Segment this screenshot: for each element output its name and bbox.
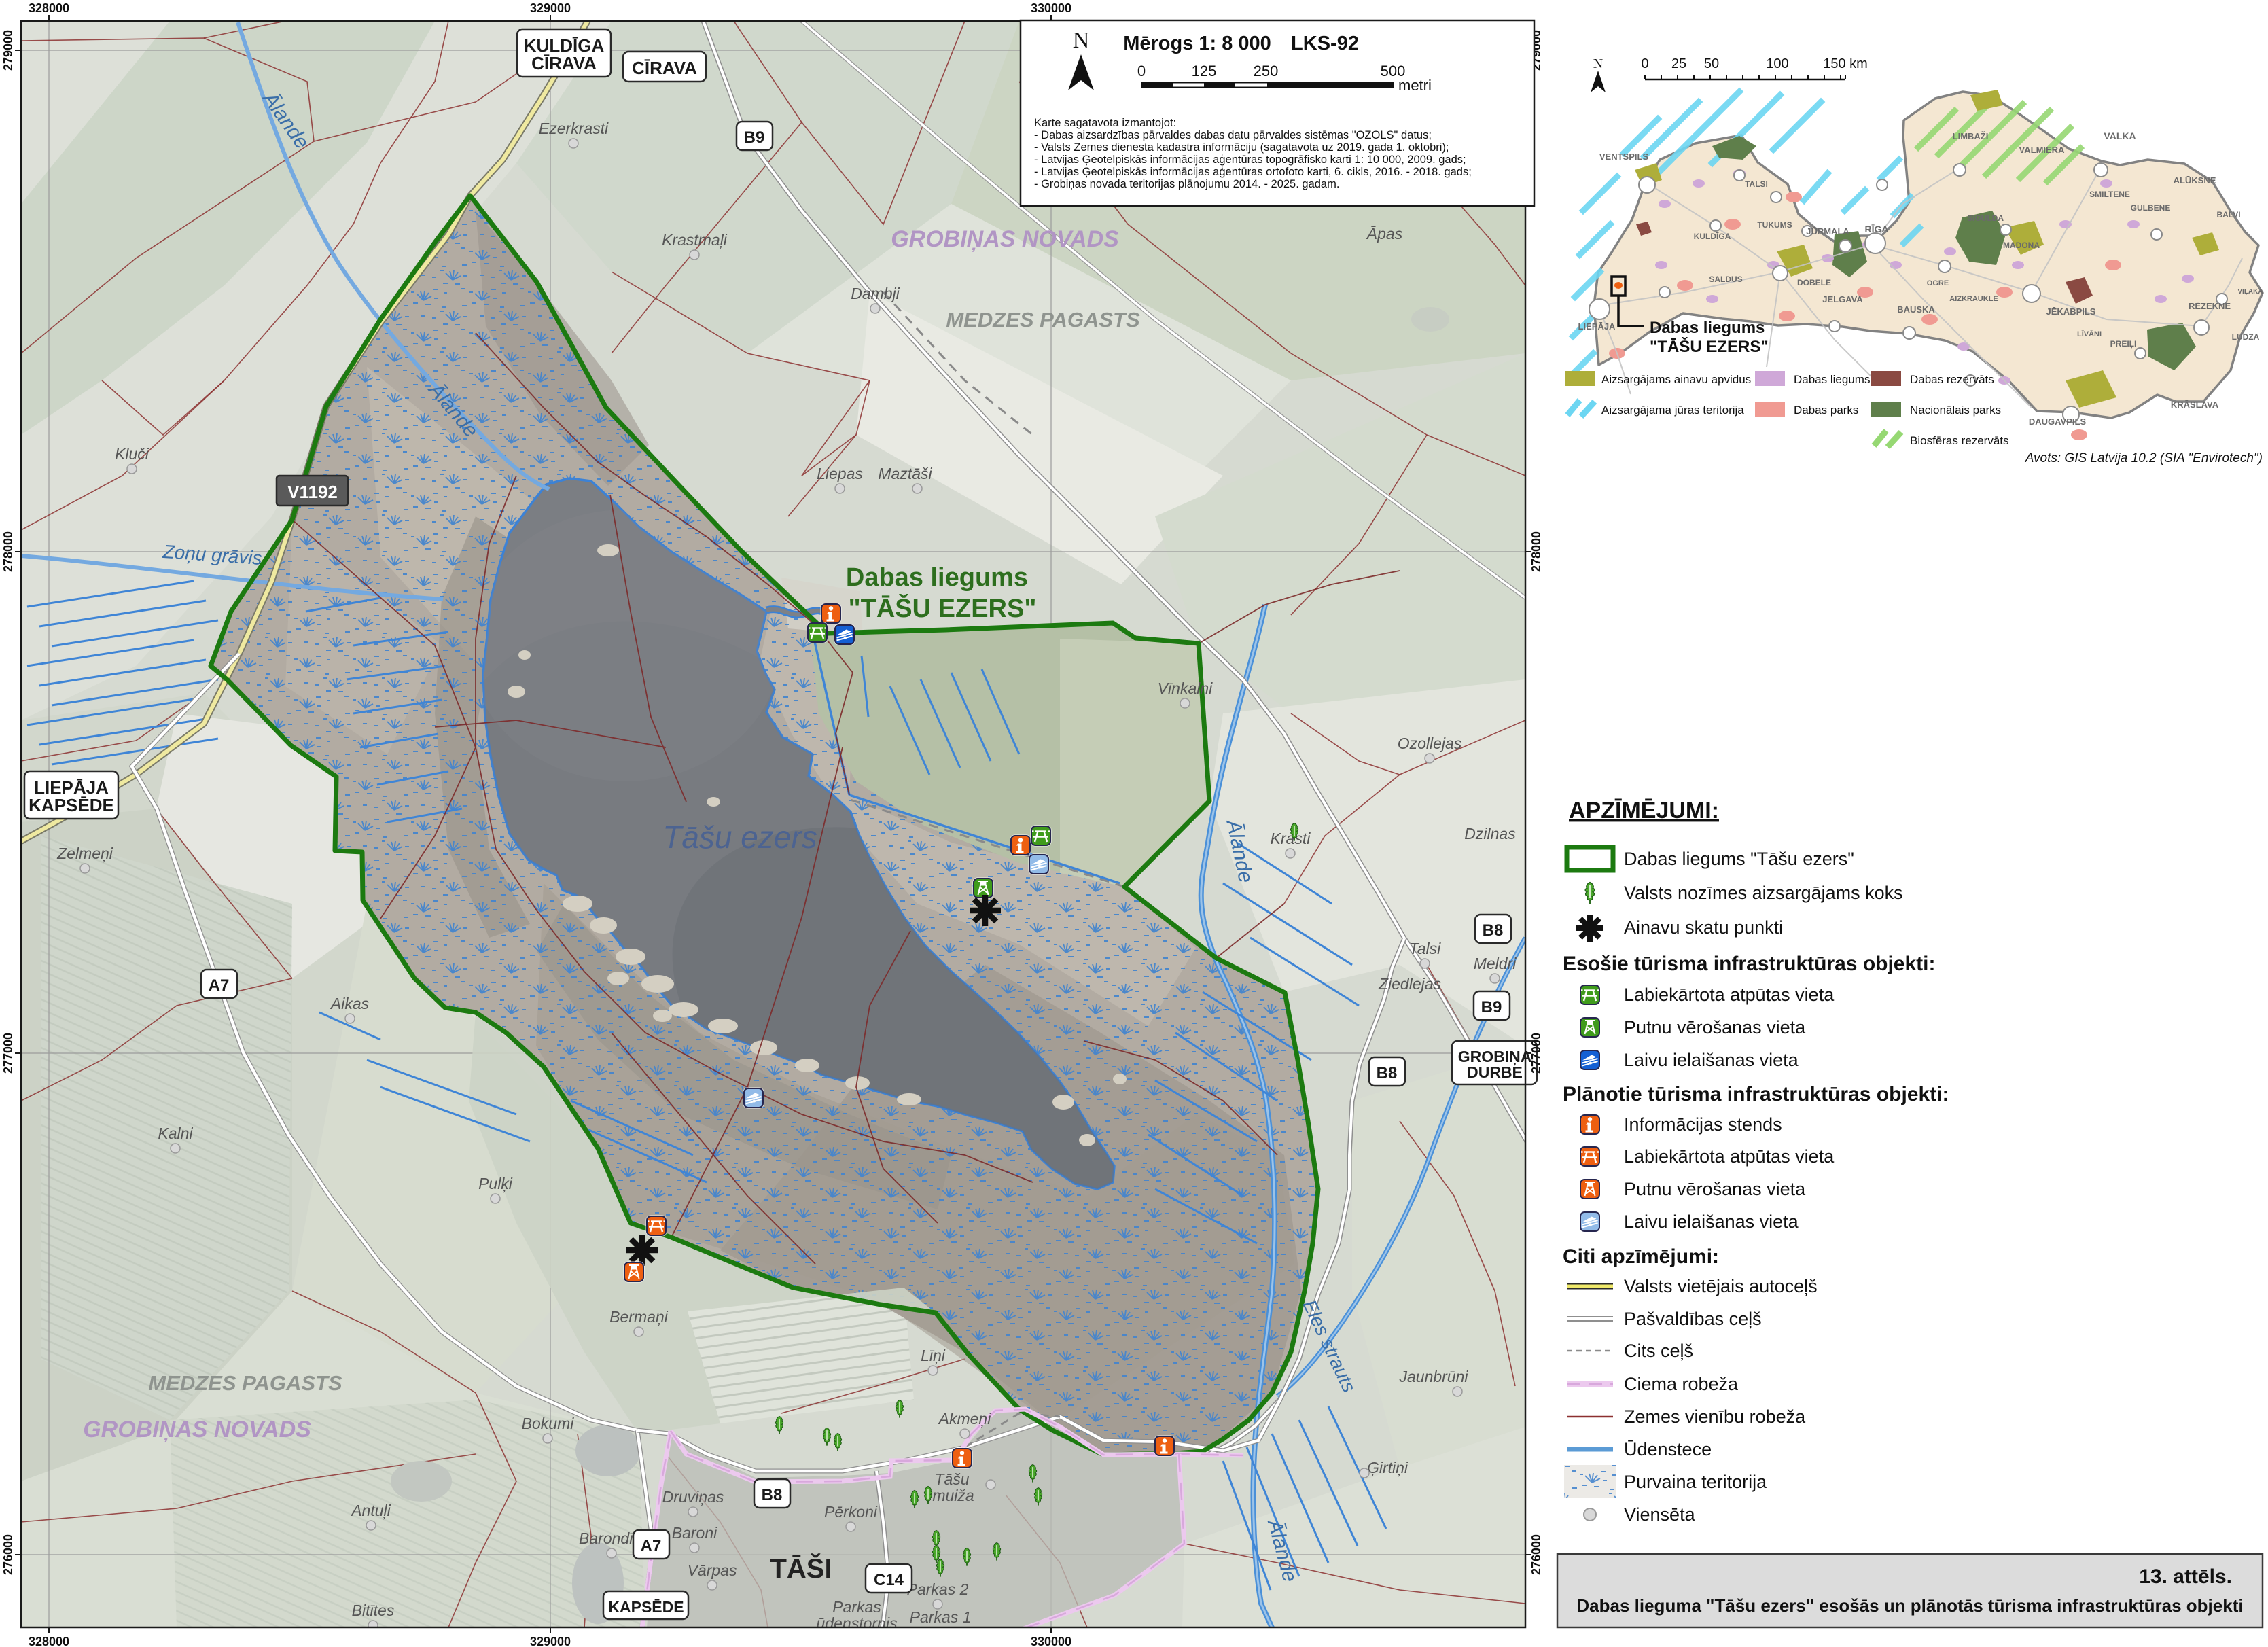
svg-text:GROBIŅAS NOVADS: GROBIŅAS NOVADS [891,226,1119,252]
svg-text:N: N [1073,28,1090,53]
svg-text:Dabas liegums: Dabas liegums [1650,319,1765,337]
svg-text:B8: B8 [1483,921,1504,940]
svg-text:Līņi: Līņi [921,1347,946,1364]
svg-text:GROBIŅAS NOVADS: GROBIŅAS NOVADS [83,1417,311,1442]
svg-text:Pulķi: Pulķi [478,1175,513,1192]
svg-text:SALDUS: SALDUS [1709,274,1742,284]
svg-text:Tāšu: Tāšu [934,1470,969,1488]
svg-text:Kluči: Kluči [115,445,149,463]
svg-text:ALŪKSNE: ALŪKSNE [2174,175,2216,185]
svg-text:150 km: 150 km [1823,56,1868,71]
svg-text:Plānotie tūrisma infrastruktūr: Plānotie tūrisma infrastruktūras objekti… [1563,1083,1949,1105]
svg-text:LIEPĀJA: LIEPĀJA [1578,321,1616,332]
svg-text:LUDZA: LUDZA [2232,332,2260,342]
svg-text:Dabas liegums: Dabas liegums [1794,373,1870,386]
svg-text:Valsts vietējais autoceļš: Valsts vietējais autoceļš [1624,1276,1818,1296]
svg-text:Jaunbrūni: Jaunbrūni [1398,1368,1468,1385]
svg-text:Meldri: Meldri [1474,955,1517,972]
svg-text:250: 250 [1254,63,1279,79]
svg-text:Liepas: Liepas [817,465,863,482]
svg-text:Viensēta: Viensēta [1624,1504,1696,1525]
svg-text:KULDĪGA: KULDĪGA [1694,232,1731,241]
svg-text:B9: B9 [1481,998,1502,1016]
svg-text:AIZKRAUKLE: AIZKRAUKLE [1949,295,1998,303]
svg-text:Tāšu ezers: Tāšu ezers [662,819,817,855]
svg-text:Karte sagatavota izmantojot:: Karte sagatavota izmantojot: [1034,117,1176,129]
svg-text:Valsts nozīmes aizsargājams ko: Valsts nozīmes aizsargājams koks [1624,883,1903,903]
svg-text:Bitītes: Bitītes [352,1601,395,1619]
svg-text:PREIĻI: PREIĻI [2110,339,2137,349]
svg-text:Aizsargājama jūras teritorija: Aizsargājama jūras teritorija [1601,404,1744,417]
svg-text:MADONA: MADONA [2003,241,2040,250]
svg-text:MEDZES PAGASTS: MEDZES PAGASTS [946,308,1140,332]
svg-text:Citi apzīmējumi:: Citi apzīmējumi: [1563,1245,1719,1268]
svg-text:Avots: GIS Latvija 10.2 (SIA ": Avots: GIS Latvija 10.2 (SIA "Envirotech… [2025,451,2263,465]
svg-text:SIGULDA: SIGULDA [1967,213,2004,223]
svg-text:CĪRAVA: CĪRAVA [531,53,597,73]
svg-text:329000: 329000 [530,1635,571,1647]
svg-text:Dabas lieguma "Tāšu ezers" eso: Dabas lieguma "Tāšu ezers" esošās un plā… [1576,1595,2243,1616]
svg-text:330000: 330000 [1031,1635,1071,1647]
svg-text:Parkas: Parkas [832,1598,881,1616]
svg-text:A7: A7 [641,1537,662,1555]
svg-text:Aizsargājams ainavu apvidus: Aizsargājams ainavu apvidus [1601,373,1751,386]
svg-text:Ūdenstece: Ūdenstece [1624,1439,1712,1459]
svg-text:B8: B8 [762,1486,783,1504]
svg-text:125: 125 [1192,63,1217,79]
svg-text:330000: 330000 [1031,1,1071,15]
svg-text:278000: 278000 [1529,531,1543,572]
svg-text:Maztāši: Maztāši [878,465,932,482]
svg-text:C14: C14 [874,1571,904,1589]
svg-text:Informācijas stends: Informācijas stends [1624,1114,1782,1135]
svg-text:B9: B9 [744,128,765,147]
svg-text:Dabas liegums "Tāšu ezers": Dabas liegums "Tāšu ezers" [1624,849,1854,869]
svg-text:VIĻAKA: VIĻAKA [2237,288,2263,296]
svg-text:Talsi: Talsi [1409,940,1441,957]
svg-text:Labiekārtota atpūtas vieta: Labiekārtota atpūtas vieta [1624,985,1835,1005]
svg-text:TUKUMS: TUKUMS [1757,220,1792,230]
svg-text:Ozollejas: Ozollejas [1398,734,1462,752]
svg-text:Mērogs 1: 8 000: Mērogs 1: 8 000 [1123,33,1271,54]
svg-text:B8: B8 [1377,1064,1398,1082]
svg-text:TALSI: TALSI [1745,179,1768,189]
svg-text:DOBELE: DOBELE [1797,278,1831,287]
svg-text:- Valsts Zemes dienesta kadast: - Valsts Zemes dienesta kadastra informā… [1034,141,1449,154]
svg-text:278000: 278000 [1,531,15,572]
svg-text:Dambji: Dambji [851,285,900,302]
svg-text:V1192: V1192 [287,482,338,502]
svg-text:JŪRMALA: JŪRMALA [1806,226,1849,236]
svg-text:Krastmaļi: Krastmaļi [662,231,728,249]
svg-text:JĒKABPILS: JĒKABPILS [2046,306,2096,317]
svg-text:- Grobiņas novada teritorijas: - Grobiņas novada teritorijas plānojumu … [1034,178,1339,190]
svg-text:TĀŠI: TĀŠI [770,1553,832,1584]
svg-text:Dabas parks: Dabas parks [1794,404,1858,417]
svg-text:Ainavu skatu punkti: Ainavu skatu punkti [1624,917,1783,938]
svg-text:Antuļi: Antuļi [350,1502,391,1519]
svg-text:GULBENE: GULBENE [2131,203,2171,213]
svg-text:metri: metri [1398,77,1432,94]
svg-text:Laivu ielaišanas vieta: Laivu ielaišanas vieta [1624,1050,1799,1070]
svg-text:DAUGAVPILS: DAUGAVPILS [2029,417,2087,427]
svg-text:Putnu vērošanas vieta: Putnu vērošanas vieta [1624,1179,1806,1199]
svg-text:LĪVĀNI: LĪVĀNI [2077,330,2102,338]
svg-text:Vīnkalni: Vīnkalni [1158,679,1213,697]
svg-text:MEDZES PAGASTS: MEDZES PAGASTS [148,1371,342,1395]
svg-text:Pērkoni: Pērkoni [824,1503,878,1521]
svg-text:OGRE: OGRE [1927,279,1949,287]
svg-text:Parkas 1: Parkas 1 [910,1608,972,1626]
svg-text:328000: 328000 [29,1635,69,1647]
svg-text:276000: 276000 [1,1534,15,1575]
svg-text:Putnu vērošanas vieta: Putnu vērošanas vieta [1624,1017,1806,1038]
svg-text:0: 0 [1641,56,1648,71]
svg-text:100: 100 [1766,56,1788,71]
svg-text:Esošie tūrisma infrastruktūras: Esošie tūrisma infrastruktūras objekti: [1563,953,1936,975]
svg-text:0: 0 [1137,63,1146,79]
svg-text:Ģirtiņi: Ģirtiņi [1367,1459,1408,1476]
svg-text:Bokumi: Bokumi [522,1415,575,1432]
svg-text:muiža: muiža [932,1487,974,1504]
svg-text:329000: 329000 [530,1,571,15]
svg-text:50: 50 [1704,56,1719,71]
svg-text:279000: 279000 [1,30,15,71]
svg-text:APZĪMĒJUMI:: APZĪMĒJUMI: [1569,798,1719,824]
svg-text:Ciema robeža: Ciema robeža [1624,1374,1739,1394]
svg-text:VENTSPILS: VENTSPILS [1599,152,1649,162]
svg-text:- Latvijas Ģeotelpiskās inform: - Latvijas Ģeotelpiskās informācijas aģe… [1034,154,1466,166]
svg-text:25: 25 [1671,56,1686,71]
svg-text:Dabas rezervāts: Dabas rezervāts [1910,373,1994,386]
svg-text:328000: 328000 [29,1,69,15]
svg-text:Zemes vienību robeža: Zemes vienību robeža [1624,1406,1806,1427]
svg-text:- Latvijas Ģeotelpiskās inform: - Latvijas Ģeotelpiskās informācijas aģe… [1034,166,1472,178]
svg-text:Vārpas: Vārpas [688,1561,737,1579]
svg-text:JELGAVA: JELGAVA [1822,294,1863,304]
svg-text:Ezerkrasti: Ezerkrasti [539,120,609,137]
svg-text:A7: A7 [209,976,230,995]
svg-text:LKS-92: LKS-92 [1291,33,1359,54]
svg-text:VALMIERA: VALMIERA [2019,145,2066,155]
svg-text:BALVI: BALVI [2216,210,2240,219]
svg-text:"TĀŠU EZERS": "TĀŠU EZERS" [849,592,1037,623]
svg-text:Zelmeņi: Zelmeņi [56,845,113,862]
svg-text:Laivu ielaišanas vieta: Laivu ielaišanas vieta [1624,1211,1799,1232]
svg-text:Nacionālais parks: Nacionālais parks [1910,404,2001,417]
svg-text:Biosfēras rezervāts: Biosfēras rezervāts [1910,434,2009,447]
svg-text:KRĀSLAVA: KRĀSLAVA [2171,400,2219,410]
svg-text:Purvaina teritorija: Purvaina teritorija [1624,1472,1767,1492]
svg-text:276000: 276000 [1529,1534,1543,1575]
svg-text:Aikas: Aikas [330,995,370,1012]
svg-text:DURBE: DURBE [1467,1063,1523,1081]
svg-text:VALKA: VALKA [2104,130,2136,141]
svg-text:Dabas liegums: Dabas liegums [846,563,1028,592]
svg-text:BAUSKA: BAUSKA [1897,304,1935,315]
svg-text:RĪGA: RĪGA [1865,224,1889,234]
svg-text:- Dabas aizsardzības pārvaldes: - Dabas aizsardzības pārvaldes dabas dat… [1034,129,1432,141]
svg-text:RĒZEKNE: RĒZEKNE [2189,301,2231,311]
svg-text:13. attēls.: 13. attēls. [2139,1565,2232,1588]
svg-text:"TĀŠU EZERS": "TĀŠU EZERS" [1650,337,1769,356]
svg-text:Dzilnas: Dzilnas [1464,825,1516,843]
svg-text:Parkas 2: Parkas 2 [907,1580,969,1598]
svg-text:KAPSĒDE: KAPSĒDE [29,795,114,815]
svg-text:277000: 277000 [1,1033,15,1074]
svg-text:Bermaņi: Bermaņi [609,1308,669,1326]
svg-text:KAPSĒDE: KAPSĒDE [608,1598,684,1616]
svg-text:Baroni: Baroni [672,1524,717,1542]
svg-text:Cits ceļš: Cits ceļš [1624,1341,1693,1361]
svg-text:Ziedlejas: Ziedlejas [1378,975,1442,993]
svg-text:Labiekārtota atpūtas vieta: Labiekārtota atpūtas vieta [1624,1146,1835,1167]
svg-text:277000: 277000 [1529,1033,1543,1074]
svg-text:Akmeņi: Akmeņi [938,1410,992,1428]
svg-text:Druviņas: Druviņas [662,1488,724,1506]
svg-text:SMILTENE: SMILTENE [2089,190,2130,199]
svg-text:N: N [1593,56,1603,71]
svg-text:Āpas: Āpas [1366,225,1403,243]
svg-text:Pašvaldības ceļš: Pašvaldības ceļš [1624,1309,1762,1329]
svg-text:Kalni: Kalni [158,1124,193,1142]
svg-text:LIMBAŽI: LIMBAŽI [1953,131,1989,141]
svg-text:CĪRAVA: CĪRAVA [632,58,697,78]
